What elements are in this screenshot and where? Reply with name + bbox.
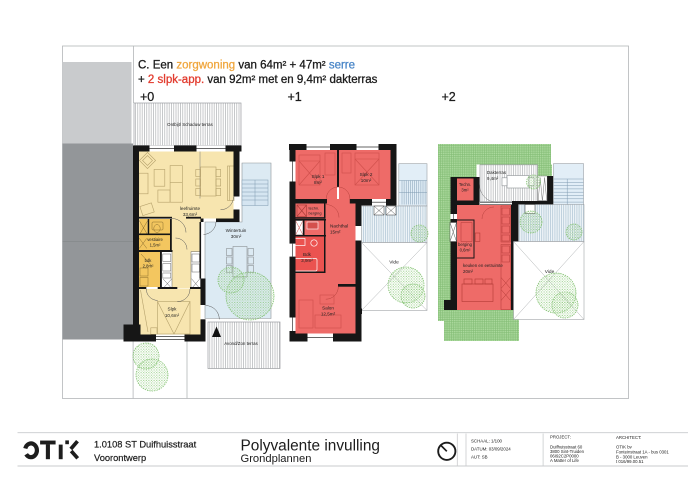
svg-text:12,5m²: 12,5m² — [321, 312, 336, 317]
svg-text:3,9m²: 3,9m² — [301, 258, 313, 263]
svg-text:10,6m²: 10,6m² — [165, 313, 180, 318]
svg-text:bdk: bdk — [145, 258, 153, 263]
svg-text:berging: berging — [309, 211, 322, 216]
svg-text:Avond/Zon terras: Avond/Zon terras — [224, 341, 258, 346]
svg-text:Slpk 2: Slpk 2 — [360, 172, 373, 177]
svg-text:Bdk: Bdk — [303, 252, 312, 257]
svg-text:Ontbijt/ Schaduw terras: Ontbijt/ Schaduw terras — [167, 122, 213, 127]
svg-text:Dakterras: Dakterras — [487, 170, 507, 175]
svg-text:9,4m²: 9,4m² — [487, 176, 499, 181]
svg-text:Slpk: Slpk — [168, 307, 178, 312]
svg-text:keuken en eetruimte: keuken en eetruimte — [463, 263, 503, 268]
svg-text:Slpk 1: Slpk 1 — [312, 174, 325, 179]
svg-text:15m²: 15m² — [330, 230, 341, 235]
svg-text:Wintertuin: Wintertuin — [226, 228, 247, 233]
svg-text:+0: +0 — [140, 90, 154, 104]
svg-text:PROJECT:: PROJECT: — [550, 435, 571, 440]
svg-text:8m²: 8m² — [314, 180, 322, 185]
svg-text:Salon: Salon — [322, 306, 334, 311]
svg-text:2,8m²: 2,8m² — [143, 264, 154, 269]
svg-text:vestiaire: vestiaire — [147, 237, 163, 242]
svg-text:10m²: 10m² — [361, 178, 372, 183]
svg-text:leefruimte: leefruimte — [180, 206, 201, 211]
svg-text:3m²: 3m² — [461, 188, 469, 193]
svg-text:30m²: 30m² — [231, 234, 242, 239]
svg-text:1,5m²: 1,5m² — [150, 243, 161, 248]
svg-text:20m²: 20m² — [463, 269, 474, 274]
svg-text:Techn.: Techn. — [459, 182, 471, 187]
svg-text:33,6m²: 33,6m² — [183, 212, 198, 217]
svg-text:Nachthal: Nachthal — [330, 224, 348, 229]
svg-text:+1: +1 — [288, 90, 302, 104]
svg-text:t 016/99.00.51: t 016/99.00.51 — [616, 459, 644, 464]
svg-text:1.0108 ST Duifhuisstraat: 1.0108 ST Duifhuisstraat — [94, 439, 197, 449]
svg-text:+ 2 slpk-app. van 92m² met en: + 2 slpk-app. van 92m² met en 9,4m² dakt… — [138, 74, 378, 86]
svg-text:Voorontwerp: Voorontwerp — [94, 453, 146, 463]
svg-text:Grondplannen: Grondplannen — [241, 453, 312, 465]
svg-text:SCHAAL: 1/100: SCHAAL: 1/100 — [471, 439, 503, 444]
svg-text:Vide: Vide — [389, 260, 399, 266]
svg-text:0,6m²: 0,6m² — [460, 248, 471, 253]
svg-text:ARCHITECT:: ARCHITECT: — [616, 435, 641, 440]
svg-text:A Matter of Life: A Matter of Life — [550, 458, 580, 463]
svg-text:+2: +2 — [442, 90, 456, 104]
svg-text:berging: berging — [458, 242, 473, 247]
svg-text:AUT: SB: AUT: SB — [471, 454, 488, 459]
svg-text:DATUM: 03/09/2024: DATUM: 03/09/2024 — [471, 446, 511, 451]
svg-text:C. Een zorgwoning van 64m² + 4: C. Een zorgwoning van 64m² + 47m² serre — [138, 59, 355, 71]
